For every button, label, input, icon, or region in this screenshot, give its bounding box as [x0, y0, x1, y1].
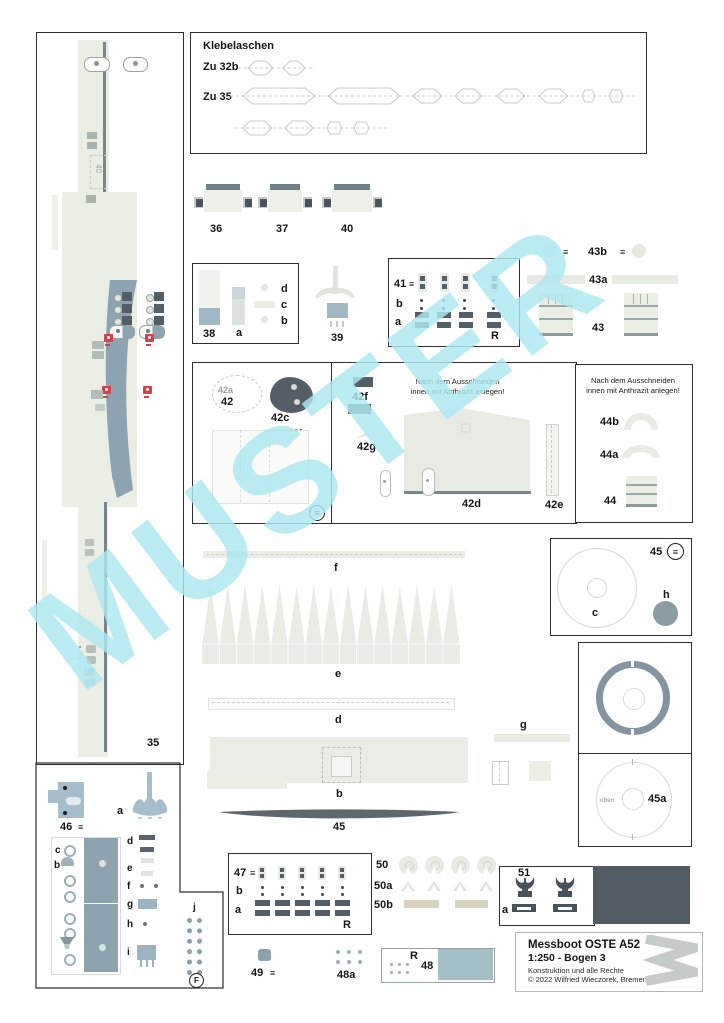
red-tick	[146, 344, 151, 346]
fold-mark-icon: ≡	[78, 823, 83, 832]
deck-edge-line-bottom	[104, 502, 107, 752]
glue-tabs	[190, 32, 645, 152]
fitting-square	[300, 874, 304, 878]
rivet-dot	[261, 893, 264, 896]
cowl-arch	[453, 881, 467, 891]
part-f-label: f	[334, 563, 338, 574]
fitting-square	[442, 276, 447, 281]
part43-label: 43	[592, 323, 604, 334]
part43-block	[539, 293, 573, 336]
deck-hatch	[92, 351, 104, 359]
part43-tick	[640, 294, 641, 304]
anchor-chain	[197, 918, 202, 975]
fitting-square	[260, 868, 264, 872]
port-dot	[398, 971, 401, 974]
part-e-spikes	[202, 578, 460, 664]
part45a-tick	[632, 834, 633, 840]
mast-pill-dot	[426, 479, 429, 482]
part42g-label: 42g	[357, 442, 376, 453]
deck-hatch	[95, 404, 105, 411]
fitting-bar	[335, 910, 350, 916]
part47a-label: a	[235, 905, 241, 916]
part42a-label: 42a	[218, 386, 233, 395]
part46-slot	[66, 797, 81, 805]
model-sheet-page: 40 35 Klebelaschen Zu 32b Zu 35	[0, 0, 724, 1023]
part43-tick	[647, 294, 648, 304]
boat-dot	[133, 61, 138, 66]
winch-dot	[146, 306, 154, 314]
part41-box	[388, 258, 520, 347]
title-block: Messboot OSTE A52 1:250 - Bogen 3 Konstr…	[515, 932, 703, 992]
port-dot	[406, 963, 409, 966]
part38a-label: a	[236, 328, 242, 339]
part47-label: 47	[234, 868, 246, 879]
sheet-title: Messboot OSTE A52	[528, 939, 640, 951]
part48-label: 48	[421, 961, 433, 972]
fitting-bar	[487, 322, 501, 328]
fold-circle-icon: ≡	[309, 505, 325, 521]
fitting-square	[420, 284, 425, 289]
anchor-chain	[187, 918, 192, 975]
winch-side-drum	[260, 199, 267, 207]
part49-label: 49	[251, 968, 263, 979]
fitting-square	[442, 284, 447, 289]
rivet-dot	[492, 299, 495, 302]
red-tick	[105, 344, 110, 346]
part46e-label: e	[127, 864, 133, 874]
part42f-label: 42f	[352, 392, 368, 403]
note-line2: innen mit Anthrazit anlegen!	[586, 386, 680, 395]
ring-hole	[623, 688, 645, 710]
part42f-bar	[348, 404, 371, 414]
winch-side-drum	[324, 199, 331, 207]
part46-dot	[63, 811, 67, 815]
fold-mark-icon: ≡	[409, 280, 414, 289]
part43-block	[624, 293, 658, 336]
fold-mark-icon: ≡	[563, 248, 568, 257]
deck-fitting	[87, 142, 97, 149]
sheet-copyright: © 2022 Wilfried Wieczorek, Bremen	[528, 975, 647, 984]
part39-dash	[342, 321, 344, 327]
part38d-disc	[261, 284, 268, 291]
beige-strip	[455, 900, 488, 908]
part44a-label: 44a	[600, 450, 618, 461]
port-dot	[347, 950, 351, 954]
part46-dot	[63, 786, 67, 790]
bollard-icon	[553, 876, 577, 900]
red-fitting-dot	[107, 336, 110, 339]
part38-body	[199, 270, 220, 308]
part45-blade	[218, 805, 461, 821]
ring-fitting	[64, 891, 76, 903]
fold-mark-icon: ≡	[673, 547, 678, 557]
part45a-hole	[622, 788, 644, 810]
part46j-label: j	[193, 903, 196, 913]
winch-block	[154, 316, 164, 325]
deck-hatch	[86, 645, 96, 653]
winch-body	[268, 190, 302, 212]
fitting-bar	[295, 900, 310, 906]
funnel-fitting	[60, 937, 74, 949]
rivet-dot	[301, 886, 304, 889]
port-dot	[347, 960, 351, 964]
red-fitting-dot	[146, 388, 149, 391]
winch-dot	[114, 306, 122, 314]
fold-mark-icon: ≡	[250, 869, 255, 878]
part42b-foldline	[269, 430, 271, 502]
part39-base	[327, 303, 348, 318]
part36-label: 36	[210, 224, 222, 235]
part42f-bar	[353, 377, 373, 387]
part39-dash	[330, 321, 332, 327]
winch-side-drum	[245, 199, 252, 207]
part43a-strip	[527, 275, 585, 284]
part44a-arc	[621, 441, 661, 459]
note-line2: innen mit Anthrazit anlegen!	[411, 387, 505, 396]
fitting-square	[260, 874, 264, 878]
part-g-label: g	[520, 720, 527, 731]
boat-dot	[146, 329, 150, 333]
deckhouse-dot	[99, 944, 106, 951]
blue-housing	[137, 945, 156, 960]
fitting-square	[463, 284, 468, 289]
note-line1: Nach dem Ausschneiden	[591, 376, 675, 385]
fitting-square	[280, 868, 284, 872]
part42b-outline	[212, 430, 309, 504]
vent-cowl-notch	[430, 866, 438, 876]
red-tick	[144, 396, 149, 398]
part44-block	[626, 476, 657, 507]
part43-line	[539, 305, 573, 307]
winch-block	[154, 292, 164, 301]
rivet-dot	[341, 893, 344, 896]
fitting-bar	[415, 322, 429, 328]
part45h-label: h	[663, 590, 670, 601]
part46a-davit	[130, 770, 170, 820]
part-g-strip	[494, 734, 570, 742]
port-dot	[336, 960, 340, 964]
part-d-label: d	[335, 715, 342, 726]
part-strip-unlabeled	[207, 771, 287, 789]
deck-hatch	[85, 539, 94, 546]
part43-line	[539, 333, 573, 336]
deck-hatch	[92, 341, 104, 349]
part42c-shape	[270, 377, 313, 413]
part51a-label: a	[502, 905, 508, 916]
part43-tick	[633, 294, 634, 304]
fitting-square	[340, 868, 344, 872]
part35-label: 35	[147, 738, 159, 749]
slot-bar-hole	[517, 907, 531, 910]
part45-box-label: 45	[650, 547, 662, 558]
part45a-tick	[632, 759, 633, 765]
part42e-foldline	[551, 425, 553, 493]
rivet-dot	[442, 307, 445, 310]
part43-line	[539, 318, 573, 320]
part38c-strip	[254, 301, 275, 308]
fitting-bar	[335, 900, 350, 906]
rivet-dot	[463, 299, 466, 302]
part48-corner-label: R	[410, 951, 418, 962]
vent-cowl-notch	[482, 866, 490, 876]
housing-leg	[146, 960, 148, 967]
light-bar	[141, 858, 154, 863]
boat-dot	[94, 61, 99, 66]
part38c-label: c	[281, 300, 287, 311]
part-b-inner-square	[331, 756, 352, 777]
part45h-disc	[653, 601, 678, 626]
ring-fitting	[64, 954, 76, 966]
mast-pill-dot	[383, 480, 386, 483]
part43b-disc	[632, 244, 646, 258]
sheet-scale: 1:250 - Bogen 3	[528, 952, 606, 964]
deck-hatch	[84, 668, 95, 676]
small-outline-foldline	[499, 762, 501, 782]
part42g-crescent	[355, 424, 383, 442]
rivet-dot	[341, 886, 344, 889]
part38-base	[199, 308, 220, 325]
fitting-square	[320, 874, 324, 878]
part46d-label: d	[127, 837, 133, 847]
ring-gap	[631, 729, 634, 736]
fitting-square	[340, 874, 344, 878]
part37-label: 37	[276, 224, 288, 235]
winch-side-drum	[196, 199, 203, 207]
rivet-dot	[321, 886, 324, 889]
deck-hatch	[85, 679, 95, 686]
small-light-part	[529, 761, 551, 781]
small-disc	[143, 922, 147, 926]
port-dot	[406, 971, 409, 974]
port-dot	[390, 971, 393, 974]
part41-corner-label: R	[491, 331, 499, 342]
winch-dot	[114, 294, 122, 302]
fold-mark-icon: ≡	[620, 248, 625, 257]
part48-blue-half	[438, 949, 493, 980]
part42c-label: 42c	[271, 413, 289, 424]
rivet-dot	[442, 299, 445, 302]
publisher-logo-icon	[640, 935, 698, 989]
part41-label: 41	[394, 279, 406, 290]
fitting-bar	[315, 900, 330, 906]
fold-mark-icon: ≡	[314, 508, 319, 518]
part45c-hole	[587, 578, 607, 598]
anthrazit-note-44: Nach dem Ausschneiden innen mit Anthrazi…	[578, 376, 688, 396]
fitting-square	[300, 868, 304, 872]
part-d-strip	[208, 698, 455, 710]
part39-label: 39	[331, 333, 343, 344]
part38b-label: b	[281, 316, 288, 327]
winch-side-drum	[375, 199, 382, 207]
housing-leg	[140, 960, 142, 967]
part50b-label: 50b	[374, 900, 393, 911]
winch-dot	[146, 294, 154, 302]
fold-strip	[52, 195, 58, 250]
fitting-square	[463, 276, 468, 281]
fitting-bar	[139, 835, 155, 840]
winch-side-drum	[305, 199, 312, 207]
part-b-label: b	[336, 789, 343, 800]
note-line1: Nach dem Ausschneiden	[415, 377, 499, 386]
deck-hatch	[91, 390, 103, 399]
fold-strip	[42, 540, 47, 600]
mast-pill	[422, 468, 435, 496]
rivet-dot	[281, 886, 284, 889]
part50a-label: 50a	[374, 881, 392, 892]
fitting-bar	[315, 910, 330, 916]
slot-bar-hole	[558, 907, 572, 910]
part44b-arc	[623, 406, 659, 432]
rivet-dot	[261, 886, 264, 889]
fitting-bar	[295, 910, 310, 916]
cowl-arch	[401, 881, 415, 891]
part44-line	[626, 484, 657, 486]
fitting-square	[492, 284, 497, 289]
part42c-hole	[294, 399, 300, 405]
fitting-bar	[255, 910, 270, 916]
part46b-label: b	[54, 861, 60, 871]
vent-cowl-notch	[456, 866, 464, 876]
housing-leg	[152, 960, 154, 967]
fitting-bar	[140, 847, 154, 852]
small-disc	[140, 884, 144, 888]
port-dot	[390, 963, 393, 966]
deckhouse-dot	[99, 860, 106, 867]
rivet-dot	[420, 299, 423, 302]
part44b-label: 44b	[600, 417, 619, 428]
part46h-label: h	[127, 920, 133, 930]
part46-label: 46	[60, 822, 72, 833]
fitting-square	[280, 874, 284, 878]
boat-dot	[116, 329, 120, 333]
part42-label: 42	[221, 397, 233, 408]
winch-block	[154, 304, 164, 313]
part38a-body	[232, 299, 245, 325]
part49-shape	[258, 949, 271, 961]
deck-dot	[79, 657, 81, 659]
part50-label: 50	[376, 860, 388, 871]
rivet-dot	[301, 893, 304, 896]
ring-gap	[631, 660, 634, 667]
fitting-bar	[437, 312, 451, 318]
part43b-disc	[543, 244, 557, 258]
part43-tick	[555, 294, 556, 304]
fitting-bar	[275, 910, 290, 916]
part38d-label: d	[281, 284, 288, 295]
deckhouse-part	[84, 904, 118, 972]
part39-arms	[314, 284, 356, 302]
light-bar	[141, 871, 153, 876]
part44-line	[626, 493, 657, 495]
part41a-label: a	[395, 317, 401, 328]
part47b-label: b	[236, 886, 243, 897]
part42b-foldline	[240, 430, 242, 502]
fitting-bar	[275, 900, 290, 906]
deck-fitting	[87, 132, 97, 139]
bollard-icon	[513, 876, 537, 900]
part38-label: 38	[203, 329, 215, 340]
red-tick	[103, 396, 108, 398]
anthrazit-note: Nach dem Ausschneiden innen mit Anthrazi…	[400, 377, 515, 397]
part38a-top	[232, 287, 245, 299]
rivet-dot	[281, 893, 284, 896]
part39-dash	[336, 321, 338, 327]
sheet-letter: F	[194, 976, 199, 985]
part44-label: 44	[604, 496, 616, 507]
red-fitting-dot	[105, 388, 108, 391]
part41b-label: b	[396, 299, 403, 310]
mast-pill	[380, 470, 391, 497]
part43-line	[624, 305, 658, 307]
part43-line	[624, 333, 658, 336]
port-dot	[336, 950, 340, 954]
rivet-dot	[492, 307, 495, 310]
winch-body	[332, 190, 372, 212]
sheet-letter-icon: F	[189, 973, 204, 988]
winch-body	[204, 190, 242, 212]
port-dot	[398, 963, 401, 966]
deck-mark-label: 40	[94, 164, 103, 173]
dark-panel-part	[593, 866, 690, 924]
vent-cowl-notch	[404, 866, 412, 876]
part46f-label: f	[127, 882, 130, 892]
part47-corner-label: R	[343, 920, 351, 931]
part43a-label: 43a	[589, 275, 607, 286]
deck-dot	[79, 646, 81, 648]
port-dot	[358, 960, 362, 964]
part43-line	[624, 318, 658, 320]
rivet-dot	[321, 893, 324, 896]
winch-block	[122, 316, 132, 325]
sheet-credit: Konstruktion und alle Rechte	[528, 966, 624, 975]
ring-fitting	[64, 845, 76, 857]
part48a-label: 48a	[337, 970, 355, 981]
part46c-label: c	[55, 846, 61, 856]
cowl-arch	[427, 881, 441, 891]
part46a-label: a	[117, 806, 123, 817]
fitting-bar	[415, 312, 429, 318]
fitting-bar	[437, 322, 451, 328]
part45a-label: 45a	[648, 794, 666, 805]
blue-plate	[138, 899, 157, 909]
part43-tick	[548, 294, 549, 304]
part46g-label: g	[127, 900, 133, 910]
part42d-label: 42d	[462, 499, 481, 510]
fitting-square	[420, 276, 425, 281]
small-disc	[154, 884, 158, 888]
part43a-strip	[612, 275, 678, 284]
part46-notch	[48, 790, 58, 803]
fold-circle-icon: ≡	[667, 543, 684, 560]
deckhouse-part	[84, 838, 118, 903]
deck-hatch	[85, 549, 94, 556]
winch-block	[122, 304, 132, 313]
part44-line	[626, 504, 657, 507]
part43b-label: 43b	[588, 247, 607, 258]
ring-fitting	[64, 913, 76, 925]
rivet-dot	[463, 307, 466, 310]
fitting-bar	[255, 900, 270, 906]
rivet-dot	[420, 307, 423, 310]
part-e-label: e	[335, 669, 341, 680]
fitting-bar	[459, 312, 473, 318]
port-dot	[358, 950, 362, 954]
part45a-oben: oben	[600, 797, 614, 804]
part-d-foldline	[212, 702, 449, 703]
red-fitting-dot	[148, 336, 151, 339]
part45-label: 45	[333, 822, 345, 833]
winch-block	[122, 292, 132, 301]
